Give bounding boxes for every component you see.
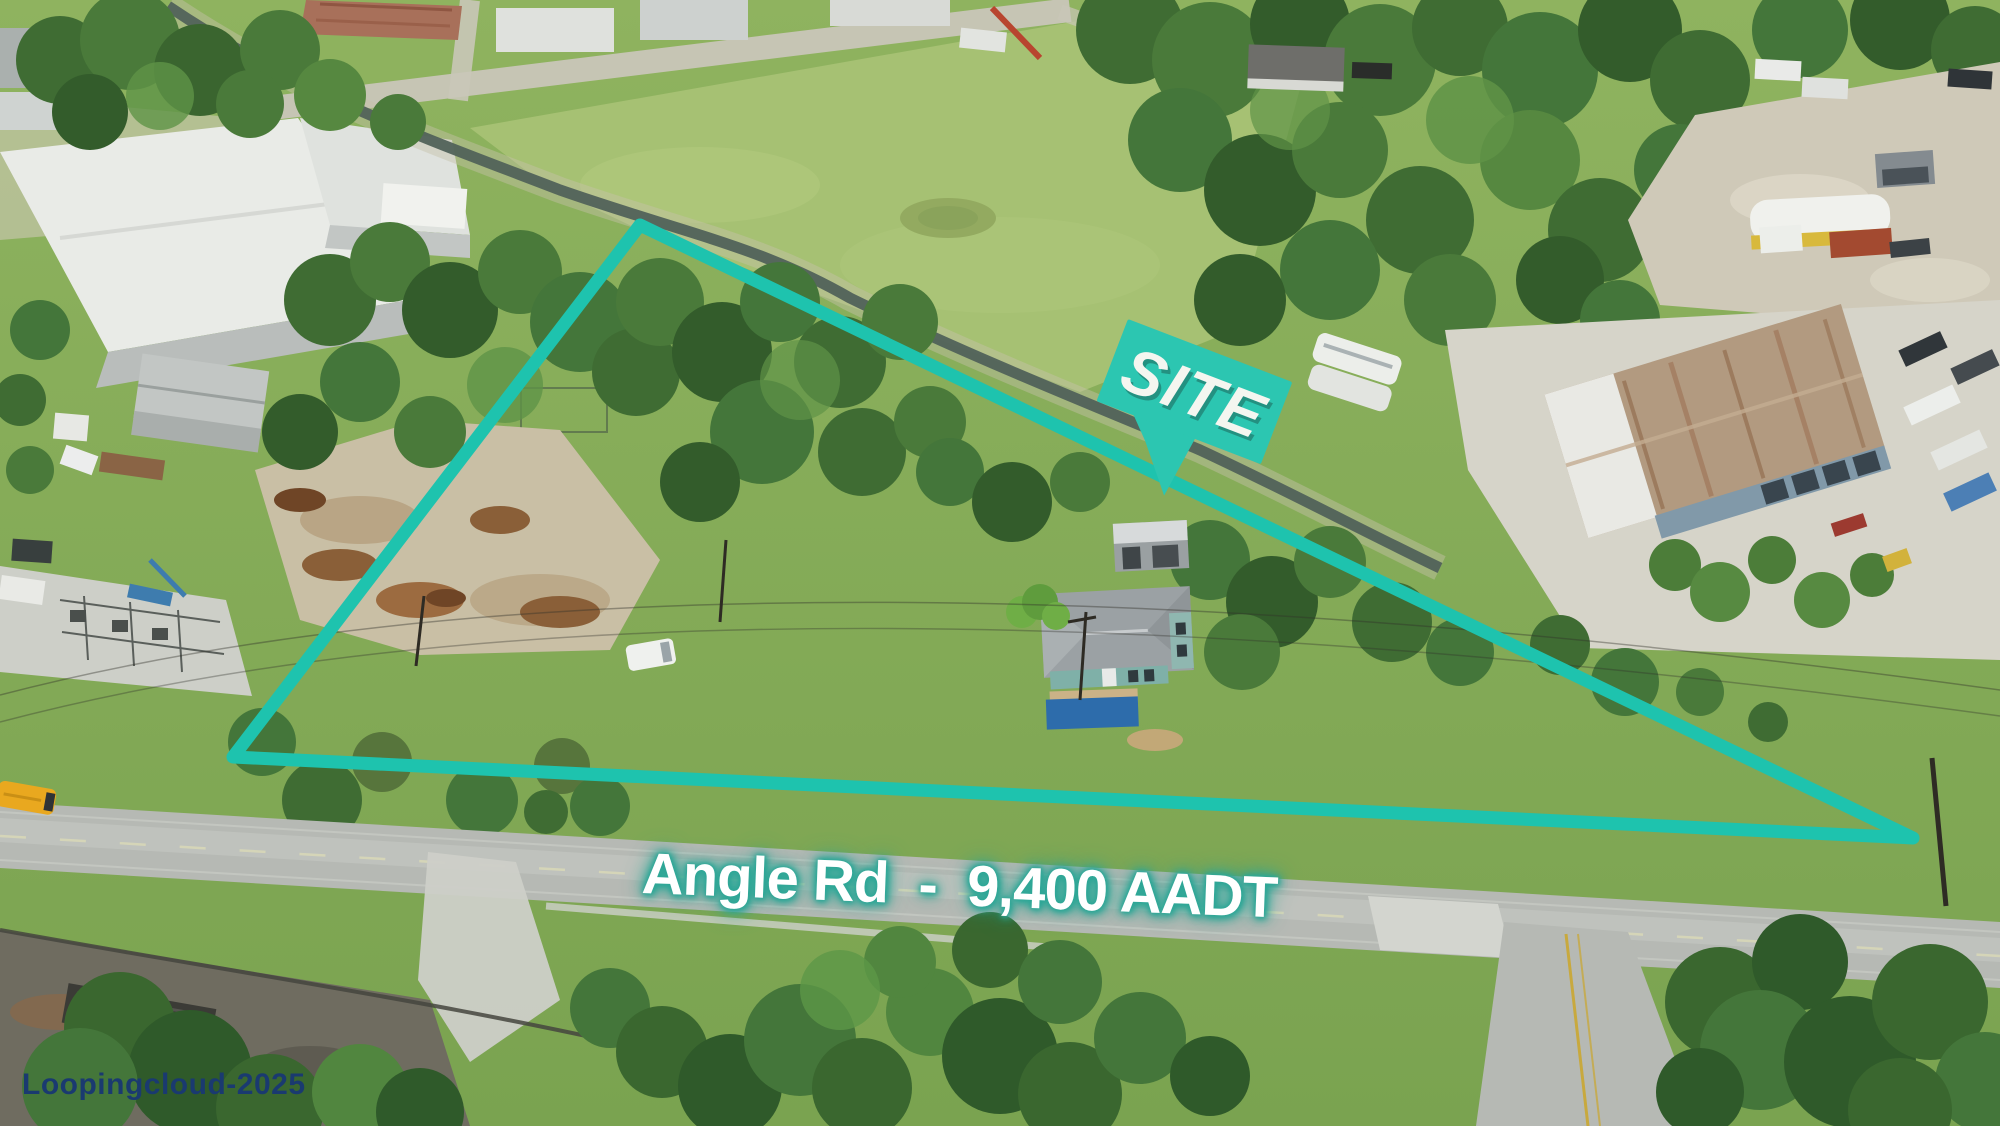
aerial-site-photo: SITE SITE Angle Rd - 9,400 AADT Loopingc… [0, 0, 2000, 1126]
dumpster [1046, 688, 1139, 729]
shed [1113, 520, 1189, 572]
aerial-scene: SITE SITE [0, 0, 2000, 1126]
watermark: Loopingcloud-2025 [22, 1068, 306, 1102]
